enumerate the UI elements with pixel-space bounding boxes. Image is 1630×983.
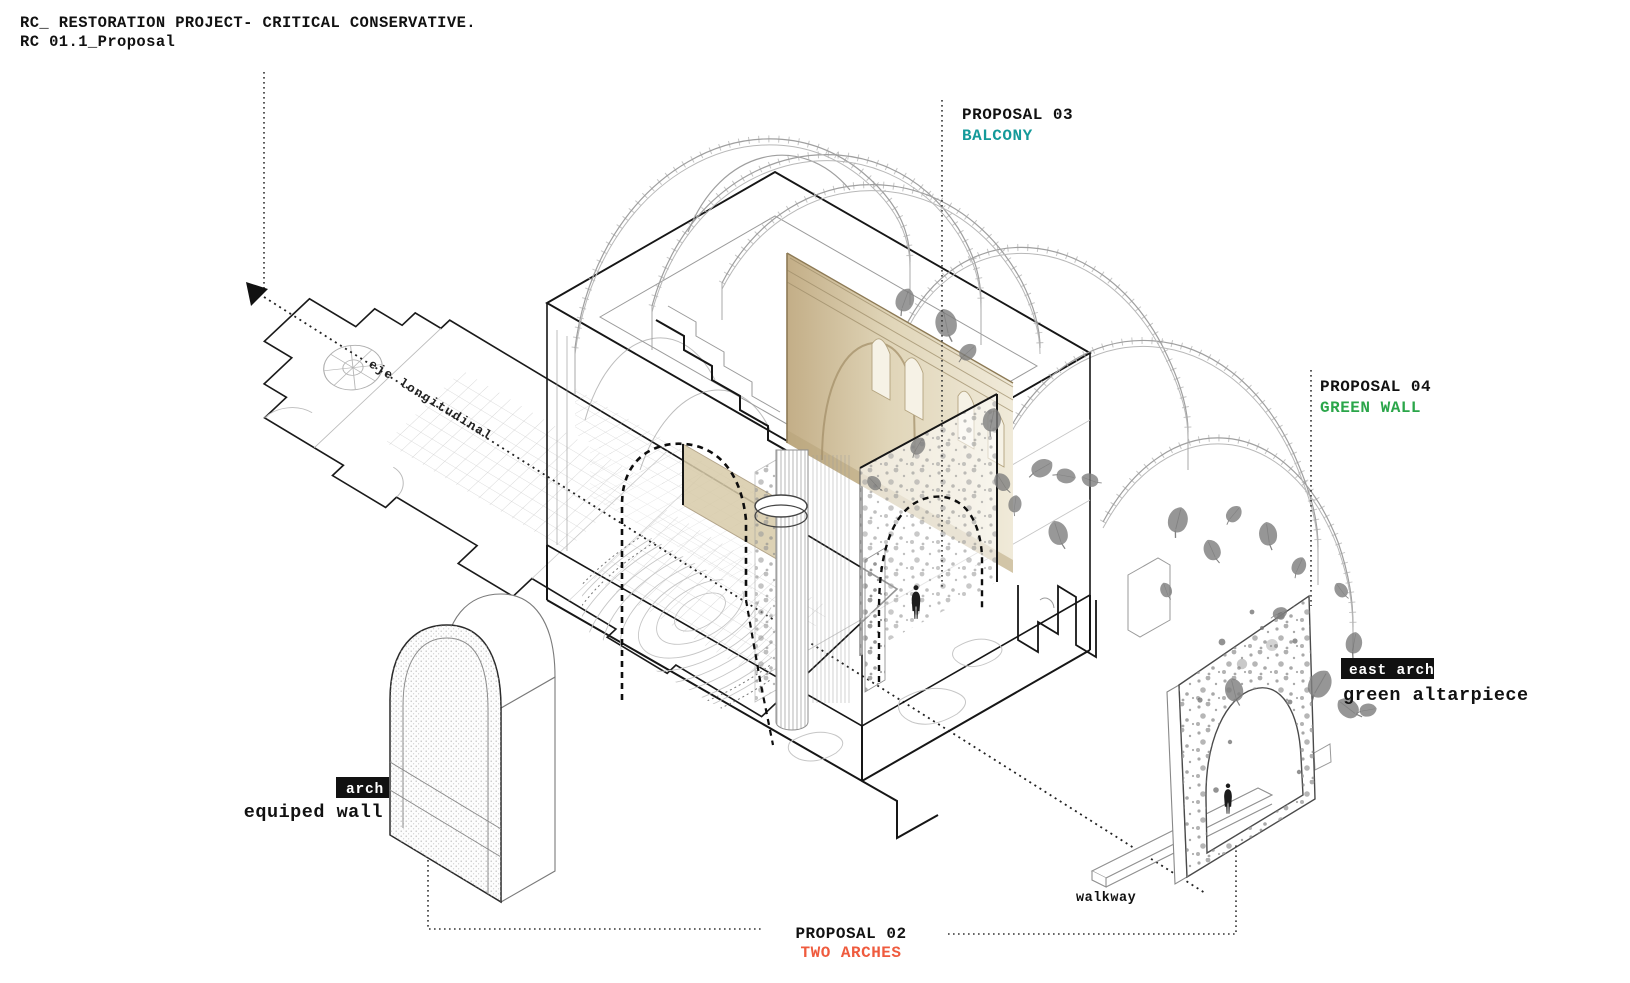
title-block: RC_ RESTORATION PROJECT- CRITICAL CONSER… [20,14,476,51]
east-arch-wall [1167,596,1331,884]
proposal02-subtitle: TWO ARCHES [800,944,901,962]
striped-retable-panel [810,455,850,703]
east-arch-caption: green altarpiece [1343,685,1529,706]
east-arch-label: east arch green altarpiece [1341,658,1529,706]
main-structure [497,139,1353,838]
proposal04-subtitle: GREEN WALL [1320,399,1421,417]
proposal02-title: PROPOSAL 02 [795,925,906,943]
equiped-wall-side-face [501,677,555,902]
equiped-wall-arch [390,594,555,902]
proposal03-label: PROPOSAL 03 BALCONY [962,106,1073,145]
restoration-axonometric-diagram: eje longitudinal [0,0,1630,983]
sheet-title: RC_ RESTORATION PROJECT- CRITICAL CONSER… [20,14,476,32]
plan-door-swing [375,467,415,497]
stepped-section-cut [656,320,796,456]
sheet-subtitle: RC 01.1_Proposal [20,33,175,51]
east-arch-tag: east arch [1349,663,1435,679]
equiped-wall-stipple [390,625,501,902]
plan-door-swing [265,397,313,433]
proposal02-label: PROPOSAL 02 TWO ARCHES [795,925,906,962]
walkway-label: walkway [1076,891,1136,906]
equiped-wall-tag: arch [346,782,384,798]
column-capital-ring [755,495,807,517]
stepped-section-cut-back [668,306,780,412]
equiped-wall-label: arch equiped wall [244,777,389,823]
equiped-wall-caption: equiped wall [244,802,383,823]
proposal04-label: PROPOSAL 04 GREEN WALL [1320,378,1431,417]
chancel-niche [1018,558,1170,657]
drawing-sheet: eje longitudinal [0,0,1630,983]
proposal03-title: PROPOSAL 03 [962,106,1073,124]
east-arch-foot-tab [1314,744,1331,770]
proposal04-title: PROPOSAL 04 [1320,378,1431,396]
proposal03-subtitle: BALCONY [962,127,1033,145]
axis-arrowhead-icon [246,282,268,306]
